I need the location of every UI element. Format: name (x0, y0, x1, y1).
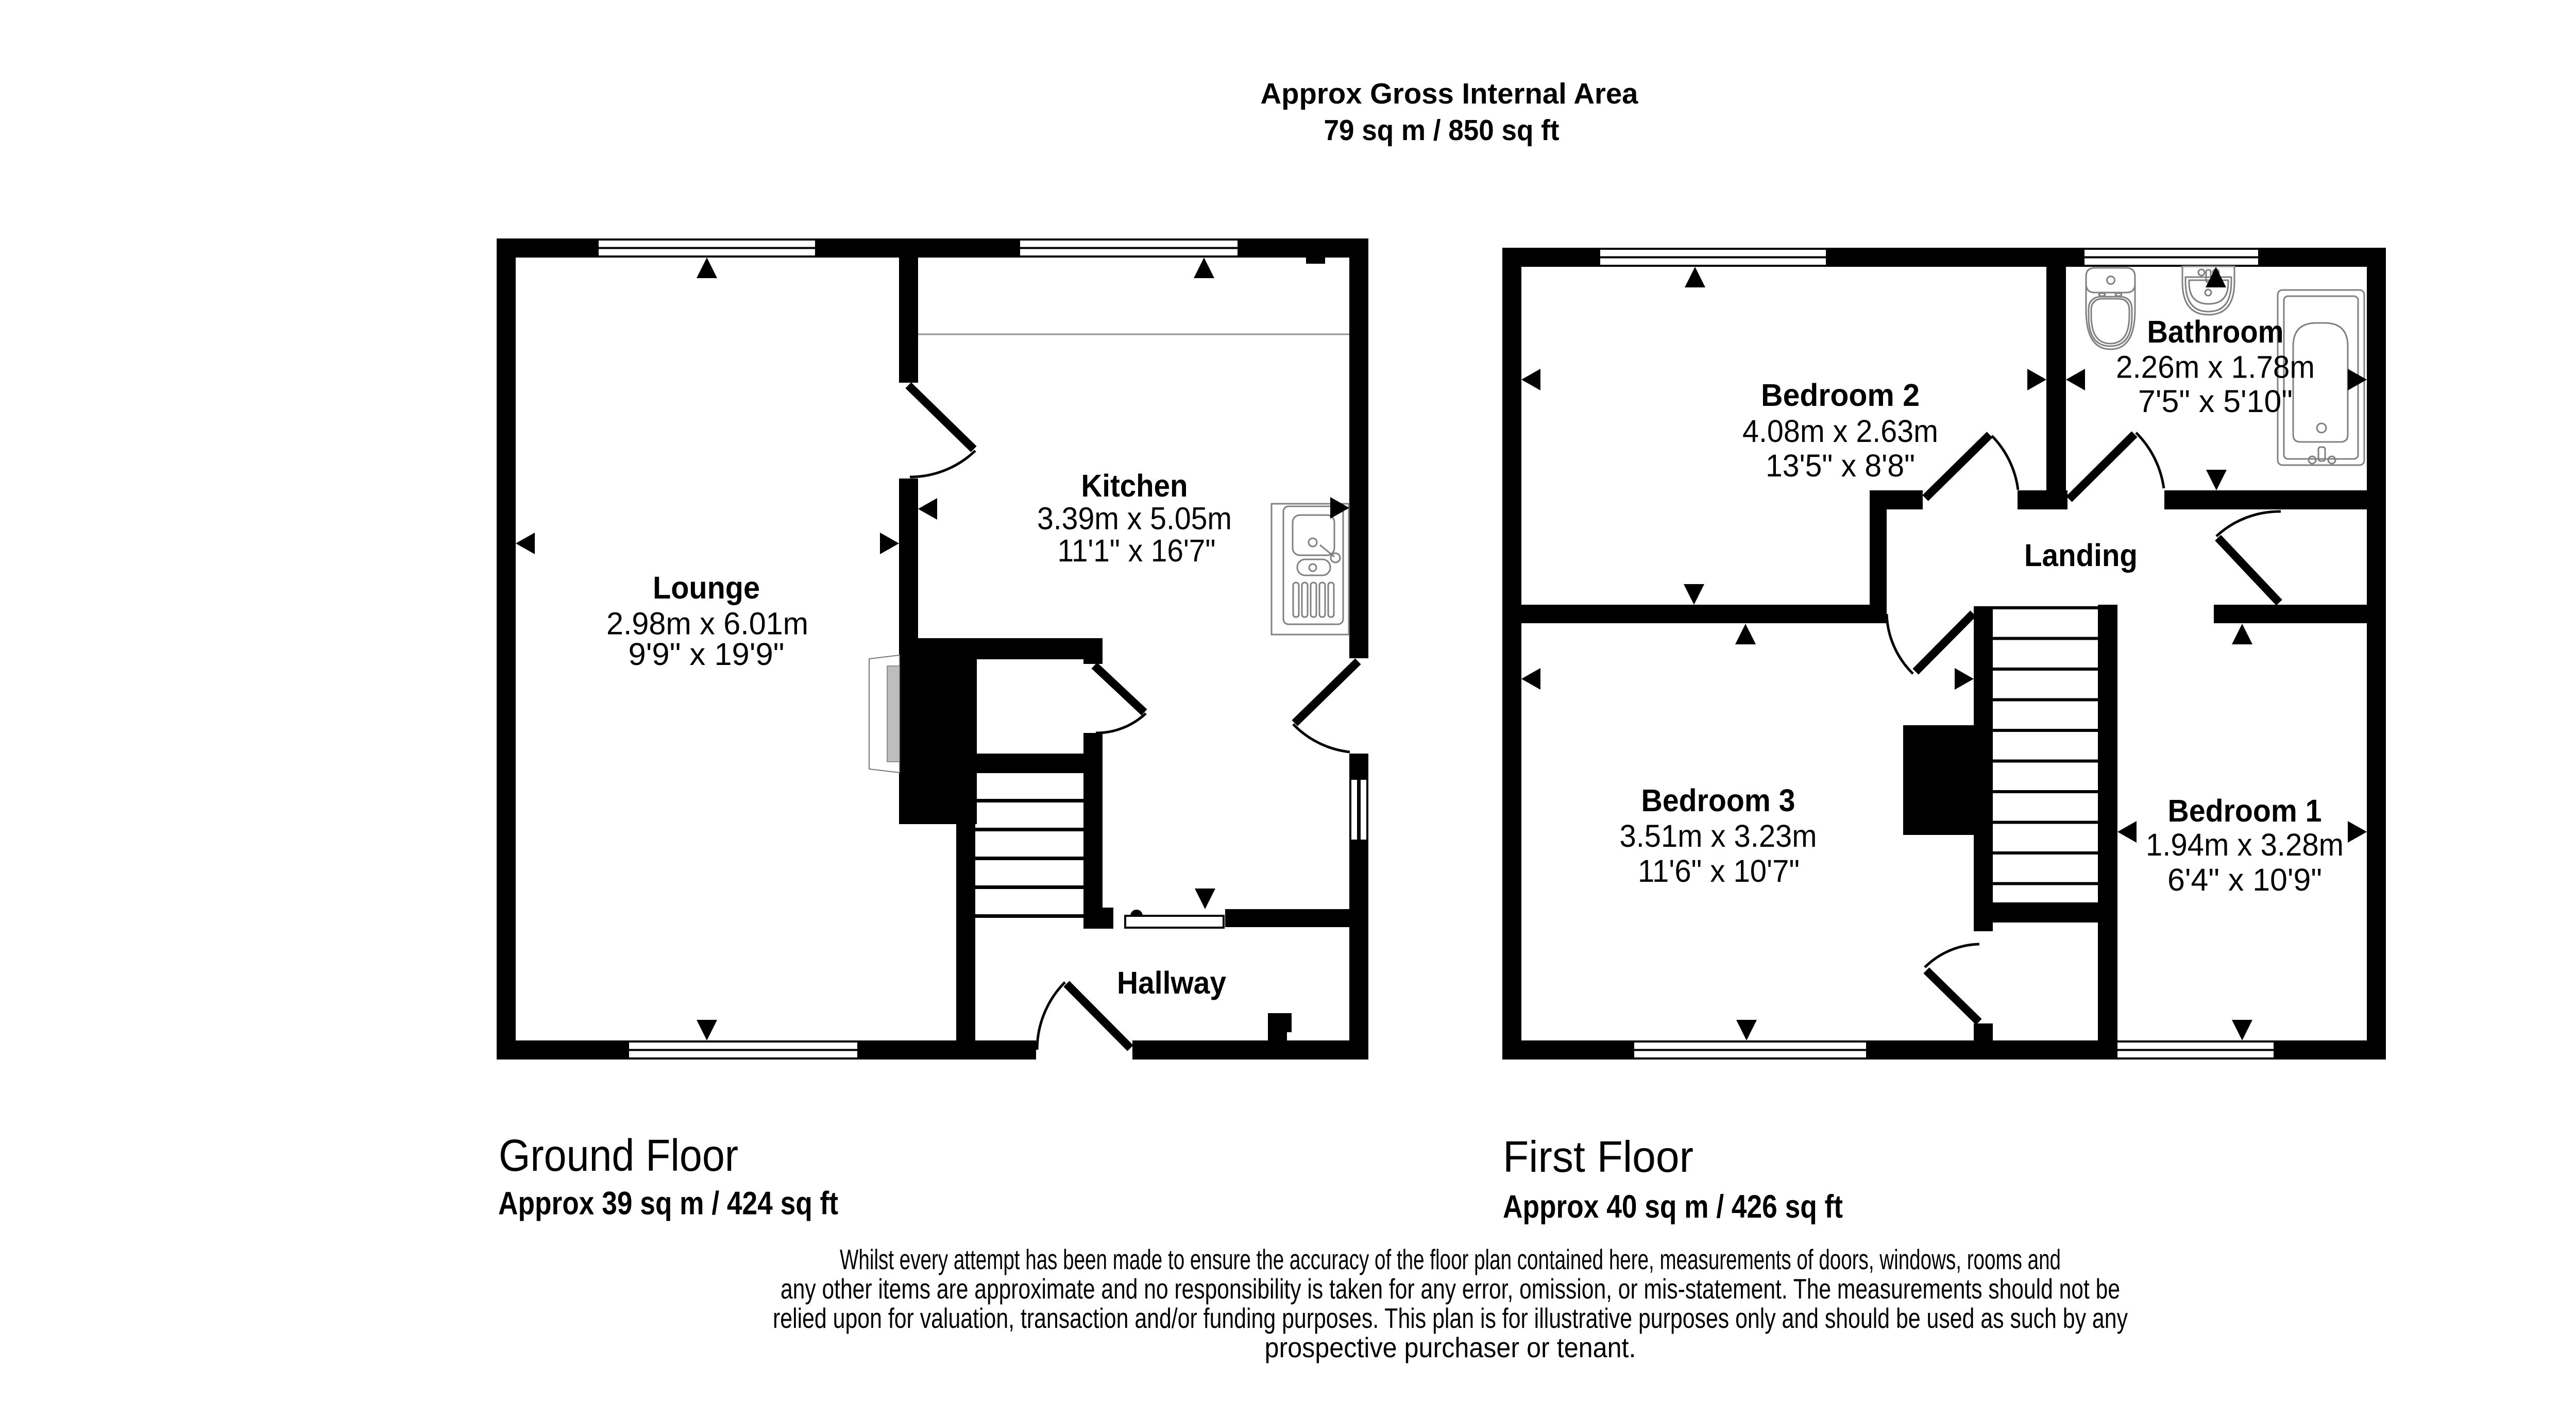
svg-text:prospective purchaser or tenan: prospective purchaser or tenant. (1265, 1332, 1636, 1363)
svg-text:6'4" x 10'9": 6'4" x 10'9" (2167, 862, 2322, 898)
svg-text:Approx 39 sq m / 424 sq ft: Approx 39 sq m / 424 sq ft (498, 1186, 838, 1222)
svg-text:79 sq m / 850 sq ft: 79 sq m / 850 sq ft (1324, 114, 1560, 146)
svg-text:3.39m x 5.05m: 3.39m x 5.05m (1037, 501, 1232, 537)
svg-text:any other items are approximat: any other items are approximate and no r… (781, 1273, 2120, 1305)
svg-text:7'5" x 5'10": 7'5" x 5'10" (2138, 384, 2293, 419)
svg-text:3.51m x 3.23m: 3.51m x 3.23m (1620, 818, 1817, 854)
svg-text:Approx Gross Internal Area: Approx Gross Internal Area (1261, 77, 1639, 110)
svg-text:9'9" x 19'9": 9'9" x 19'9" (629, 637, 785, 672)
svg-text:Lounge: Lounge (653, 570, 760, 606)
svg-text:2.26m x 1.78m: 2.26m x 1.78m (2116, 350, 2315, 385)
svg-text:11'1" x 16'7": 11'1" x 16'7" (1058, 533, 1216, 569)
svg-text:Bathroom: Bathroom (2147, 314, 2284, 350)
svg-text:First Floor: First Floor (1503, 1133, 1693, 1182)
svg-text:1.94m x 3.28m: 1.94m x 3.28m (2146, 827, 2344, 863)
svg-text:relied upon for valuation, tra: relied upon for valuation, transaction a… (773, 1303, 2128, 1334)
svg-text:Bedroom 3: Bedroom 3 (1641, 783, 1795, 818)
svg-text:11'6" x 10'7": 11'6" x 10'7" (1638, 853, 1800, 889)
svg-text:Approx 40 sq m / 426 sq ft: Approx 40 sq m / 426 sq ft (1503, 1189, 1843, 1225)
svg-text:Kitchen: Kitchen (1081, 468, 1188, 504)
svg-text:4.08m x 2.63m: 4.08m x 2.63m (1742, 414, 1938, 449)
svg-text:Hallway: Hallway (1117, 965, 1226, 1001)
svg-text:Ground Floor: Ground Floor (499, 1131, 738, 1181)
svg-text:Bedroom 2: Bedroom 2 (1761, 378, 1920, 413)
svg-text:Whilst every attempt has been: Whilst every attempt has been made to en… (840, 1244, 2061, 1275)
svg-text:Bedroom 1: Bedroom 1 (2168, 793, 2322, 829)
svg-text:Landing: Landing (2024, 538, 2138, 573)
svg-text:13'5" x 8'8": 13'5" x 8'8" (1766, 448, 1915, 484)
